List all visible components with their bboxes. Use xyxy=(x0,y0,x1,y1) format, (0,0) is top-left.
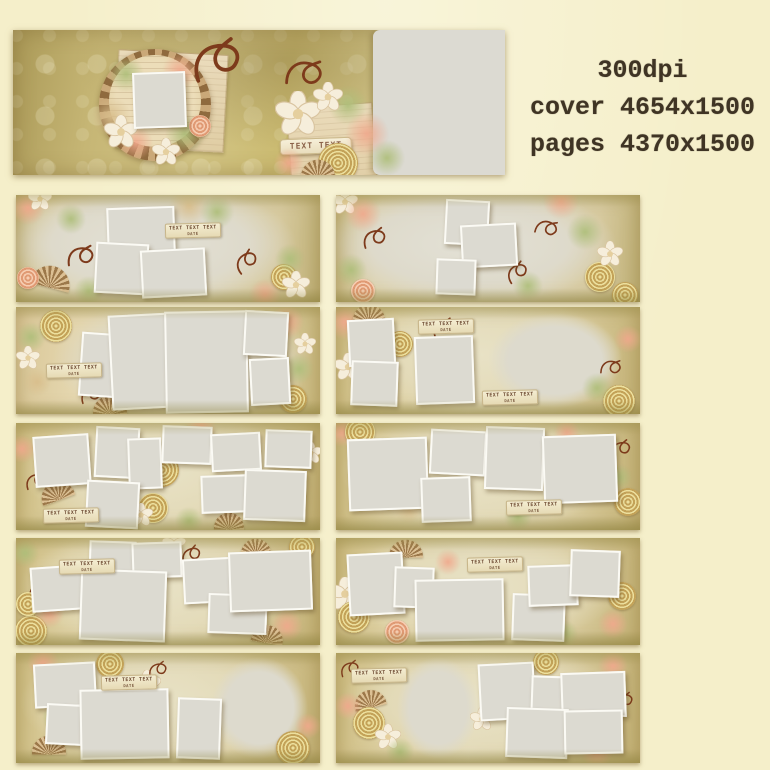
photo-placeholder xyxy=(484,426,545,491)
photo-placeholder xyxy=(265,430,313,470)
photo-placeholder xyxy=(139,247,206,298)
photo-placeholder xyxy=(542,433,618,504)
photo-placeholder xyxy=(176,697,222,760)
rose-icon xyxy=(612,282,638,303)
page-thumbnail-5: TEXT TEXT TEXTDATE xyxy=(16,423,320,530)
swirl-icon xyxy=(361,221,391,251)
text-tag: TEXT TEXT TEXTDATE xyxy=(46,362,102,378)
page-thumbnail-2 xyxy=(336,195,640,302)
photo-placeholder xyxy=(420,476,471,522)
page-thumbnail-6: TEXT TEXT TEXTDATE xyxy=(336,423,640,530)
page-thumbnail-10: TEXT TEXT TEXTDATE xyxy=(336,653,640,763)
cover-thumbnail: TEXT TEXT xyxy=(13,30,505,175)
page-thumbnail-9: TEXT TEXT TEXTDATE xyxy=(16,653,320,763)
photo-placeholder xyxy=(161,425,212,465)
specs-cover-size: cover 4654x1500 xyxy=(515,89,770,126)
swirl-icon xyxy=(189,30,251,87)
photo-placeholder xyxy=(79,689,169,761)
leaves-icon xyxy=(249,279,281,303)
text-tag: TEXT TEXT TEXTDATE xyxy=(506,499,562,515)
preview-sheet: TEXT TEXT 300dpi cover 4654x1500 pages 4… xyxy=(0,0,770,770)
photo-placeholder xyxy=(569,549,620,597)
photo-placeholder xyxy=(414,335,475,405)
text-tag: TEXT TEXT TEXTDATE xyxy=(418,318,474,334)
leaves-icon xyxy=(614,325,640,353)
leaves-icon xyxy=(271,610,303,642)
photo-placeholder xyxy=(429,429,487,477)
photo-placeholder xyxy=(249,357,292,406)
photo-placeholder xyxy=(505,707,568,759)
specs-dpi: 300dpi xyxy=(515,52,770,89)
flower-icon xyxy=(294,333,316,355)
page-thumbnail-3: TEXT TEXT TEXTDATE xyxy=(16,307,320,414)
leaves-icon xyxy=(295,713,320,739)
photo-placeholder xyxy=(33,433,92,488)
rose-icon xyxy=(17,267,39,289)
text-tag: TEXT TEXT TEXTDATE xyxy=(101,674,157,690)
paper-fan-icon xyxy=(214,513,244,530)
text-tag: TEXT TEXT TEXTDATE xyxy=(467,557,523,573)
rose-icon xyxy=(385,620,409,644)
photo-placeholder xyxy=(243,310,289,357)
swirl-icon xyxy=(228,240,266,278)
flower-icon xyxy=(313,82,343,112)
leaves-icon xyxy=(175,507,203,530)
photo-placeholder xyxy=(414,578,504,641)
leaves-icon xyxy=(274,148,304,175)
flower-icon xyxy=(28,195,52,211)
page-thumbnail-4: TEXT TEXT TEXTDATETEXT TEXT TEXTDATE xyxy=(336,307,640,414)
leaves-icon xyxy=(598,609,628,639)
leaves-icon xyxy=(275,244,305,274)
specs-pages-size: pages 4370x1500 xyxy=(515,126,770,163)
text-tag: TEXT TEXT TEXTDATE xyxy=(43,507,99,523)
text-tag: TEXT TEXT TEXTDATE xyxy=(351,668,407,684)
leaves-icon xyxy=(56,204,86,234)
flower-icon xyxy=(597,241,623,267)
page-thumbnail-1: TEXT TEXT TEXTDATE xyxy=(16,195,320,302)
photo-placeholder xyxy=(243,469,306,522)
photo-placeholder xyxy=(564,710,623,755)
rose-icon xyxy=(351,279,375,302)
leaves-icon xyxy=(16,539,39,567)
photo-placeholder xyxy=(210,431,262,472)
tag-line2: DATE xyxy=(486,398,534,404)
text-tag: TEXT TEXT TEXTDATE xyxy=(165,222,221,238)
rose-icon xyxy=(585,262,615,292)
tag-line2: DATE xyxy=(471,565,519,571)
photo-placeholder xyxy=(436,258,478,295)
rose-icon xyxy=(189,115,211,137)
photo-placeholder xyxy=(347,437,429,512)
leaves-icon xyxy=(386,738,414,763)
leaves-icon xyxy=(336,692,362,720)
text-tag: TEXT TEXT TEXTDATE xyxy=(482,390,538,406)
specs-text-block: 300dpi cover 4654x1500 pages 4370x1500 xyxy=(515,52,770,163)
flower-icon xyxy=(282,271,310,299)
photo-placeholder xyxy=(79,569,168,643)
leaves-icon xyxy=(435,549,461,575)
tag-line2: DATE xyxy=(355,676,403,682)
photo-placeholder xyxy=(228,549,313,611)
cover-photo-placeholder xyxy=(132,71,187,129)
flower-icon xyxy=(152,138,180,166)
flower-icon xyxy=(16,346,40,370)
rose-icon xyxy=(533,653,559,675)
tag-line2: DATE xyxy=(63,567,111,573)
photo-placeholder xyxy=(164,311,249,414)
photo-placeholder xyxy=(350,360,398,406)
page-thumbnail-8: TEXT TEXT TEXTDATE xyxy=(336,538,640,645)
text-tag: TEXT TEXT TEXTDATE xyxy=(58,559,114,575)
page-thumbnail-7: TEXT TEXT TEXTDATE xyxy=(16,538,320,645)
leaves-icon xyxy=(369,140,405,175)
